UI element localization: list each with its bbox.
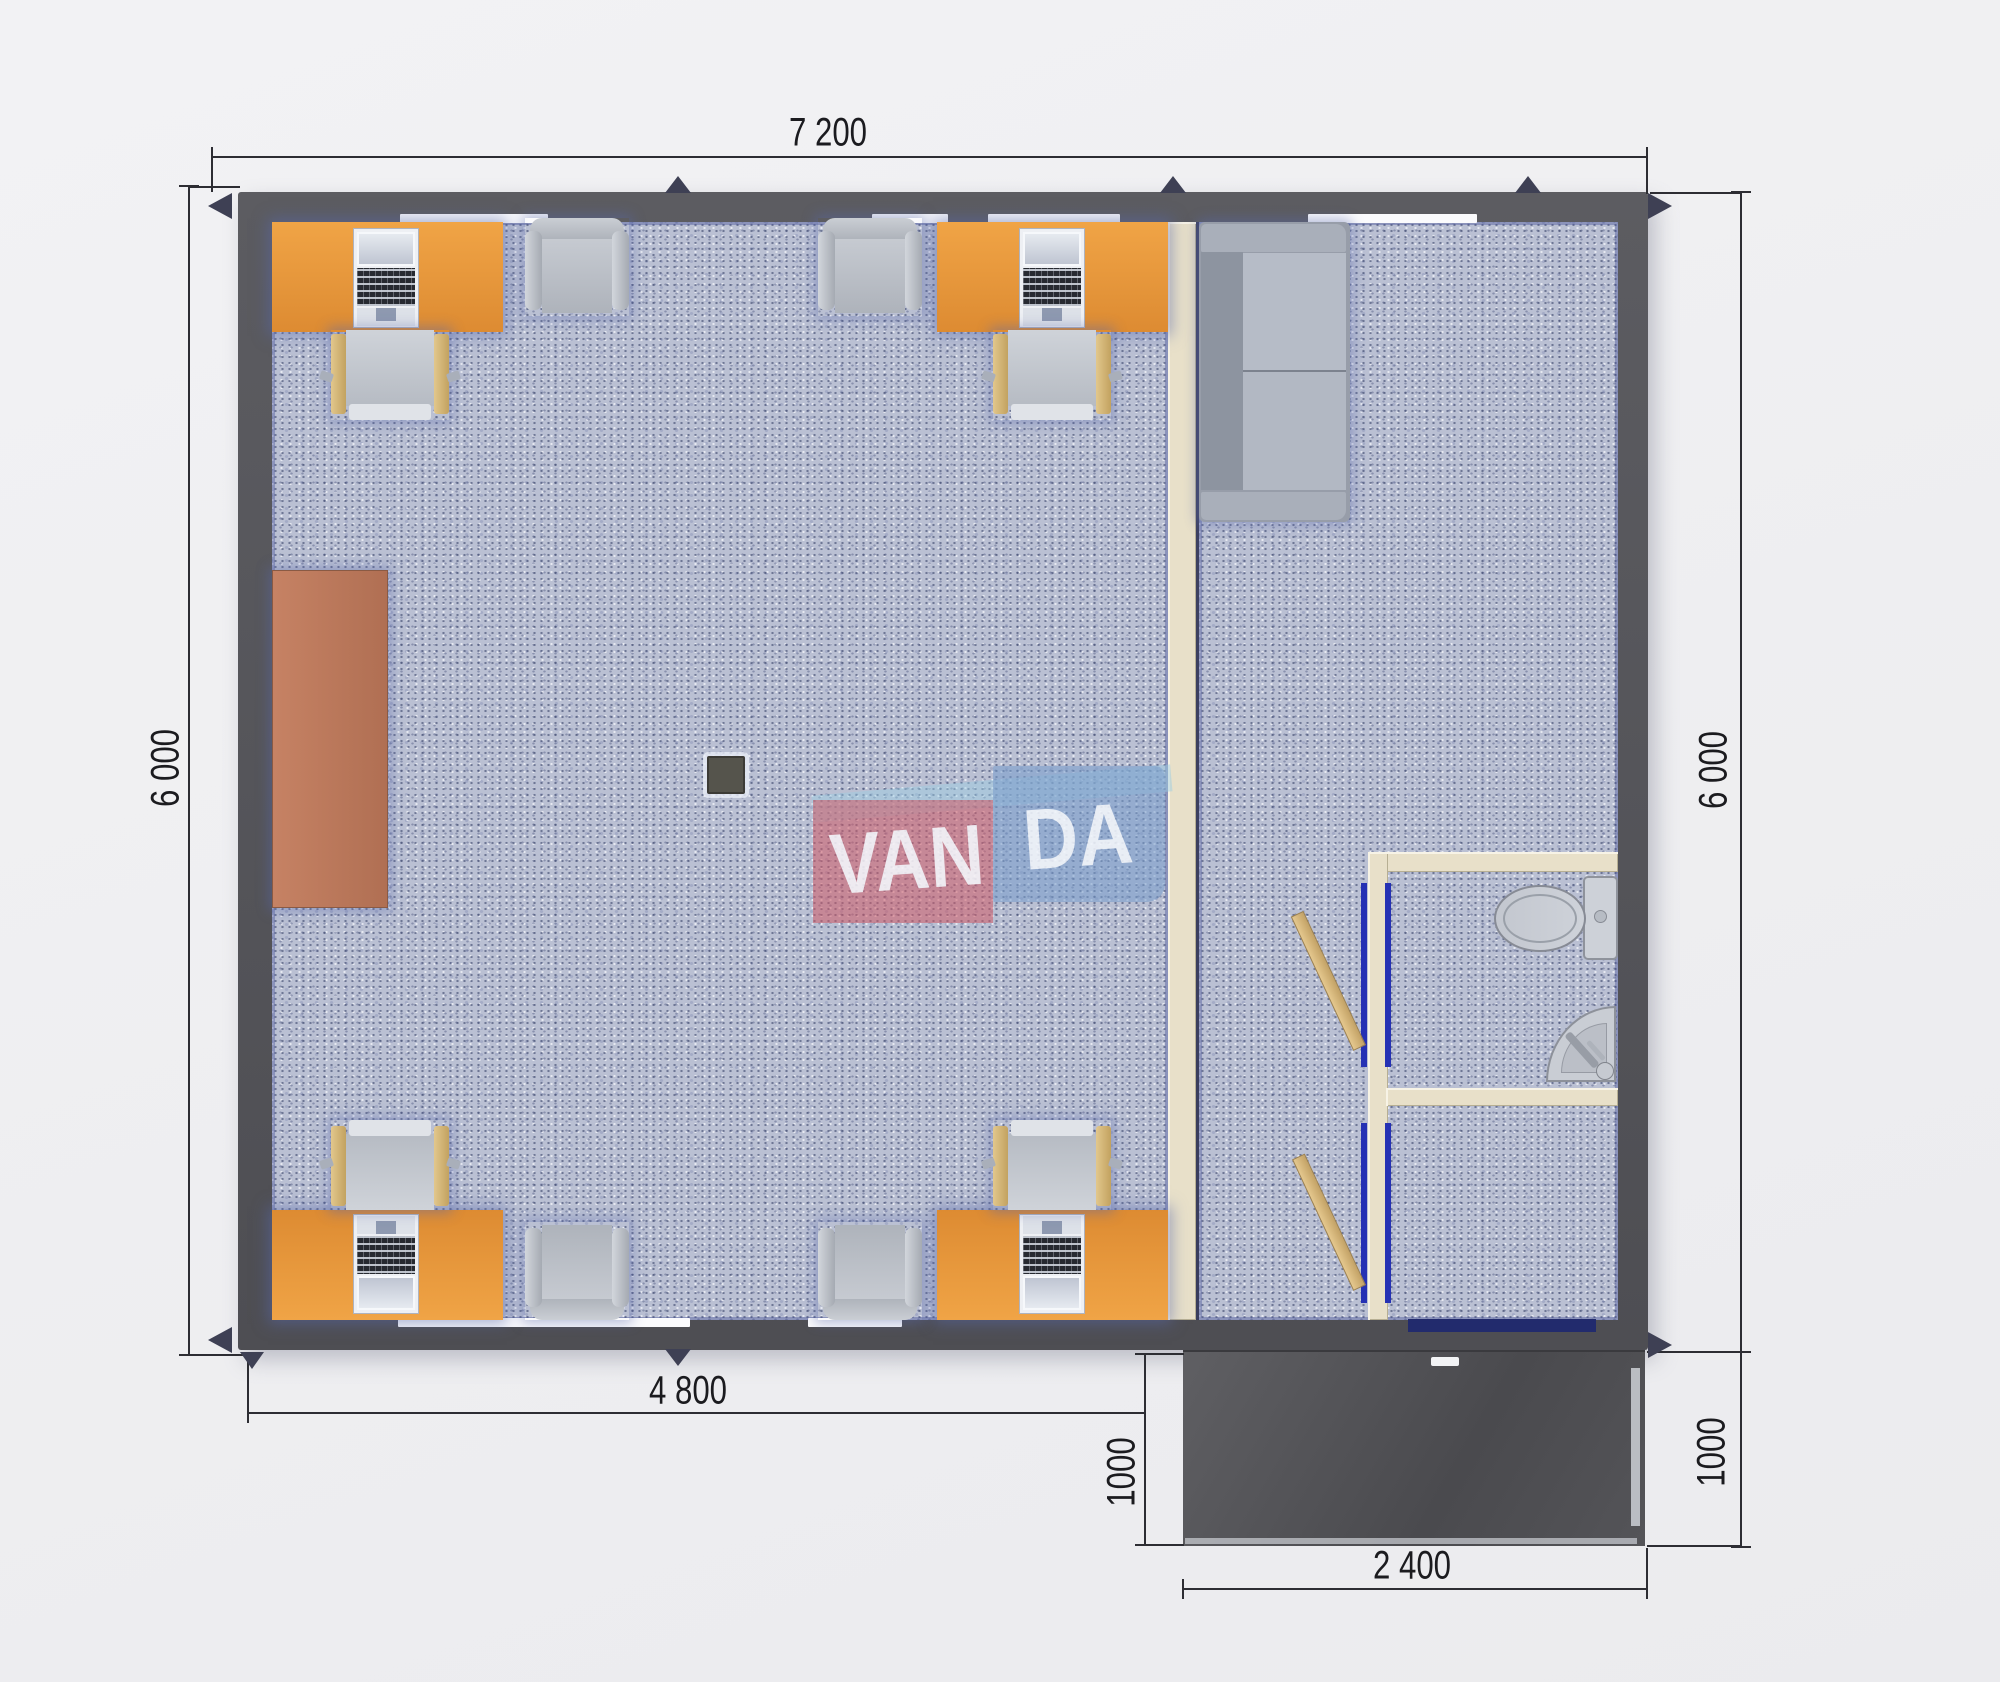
- computer-top-left: [353, 228, 419, 328]
- floor-plan-canvas: VAN DA 7 200 6 000 6 000 1000 4 800 1000…: [0, 0, 2000, 1682]
- computer-screen: [357, 1276, 415, 1310]
- dim-extension: [190, 186, 240, 188]
- porch-edge-right: [1631, 1368, 1640, 1526]
- wall-joint-arrow-top-2-icon: [1160, 176, 1186, 193]
- logo-text-van: VAN: [826, 810, 989, 911]
- corner-arrow-down-icon: [240, 1352, 264, 1369]
- toilet-flush-button: [1594, 910, 1607, 923]
- sofa-cushion-2: [1243, 372, 1346, 490]
- sofa-armrest-bottom: [1201, 492, 1346, 520]
- visitor-chair-bottom-1: [525, 1222, 629, 1320]
- corner-arrow-bottom-left-icon: [208, 1327, 232, 1353]
- computer-tray: [357, 1216, 415, 1234]
- entrance-porch: [1183, 1350, 1645, 1546]
- column: [707, 756, 745, 794]
- office-chair-top-right: [993, 330, 1111, 420]
- toilet-seat-rim: [1503, 894, 1577, 943]
- computer-keyboard: [357, 268, 415, 306]
- corner-arrow-bottom-right-icon: [1648, 1332, 1672, 1358]
- computer-bottom-left: [353, 1214, 419, 1314]
- entrance-door: [1408, 1319, 1596, 1332]
- dim-line-porch-right: [1740, 1352, 1742, 1548]
- porch-door-threshold: [1431, 1357, 1459, 1366]
- visitor-chair-bottom-2: [818, 1222, 922, 1320]
- computer-tray: [357, 308, 415, 326]
- dim-extension: [1146, 1544, 1184, 1546]
- bathroom-wall-divider: [1386, 1088, 1618, 1106]
- visitor-chair-top-2: [818, 218, 922, 316]
- dim-label-left-height: 6 000: [144, 729, 189, 807]
- door-frame-wc-inner: [1385, 883, 1391, 1067]
- computer-keyboard: [1023, 1236, 1081, 1274]
- computer-bottom-right: [1019, 1214, 1085, 1314]
- toilet-tank: [1583, 876, 1618, 960]
- wall-joint-arrow-bottom-icon: [665, 1349, 691, 1366]
- dim-label-overall-width: 7 200: [789, 111, 867, 156]
- dim-line-top: [212, 156, 1648, 158]
- sofa-cushion-1: [1243, 253, 1346, 372]
- faucet-knob: [1596, 1062, 1614, 1080]
- computer-tray: [1023, 308, 1081, 326]
- wall-joint-arrow-top-1-icon: [665, 176, 691, 193]
- corner-arrow-top-left-icon: [208, 193, 232, 219]
- dim-extension: [1646, 1548, 1648, 1590]
- bathroom-wall-top: [1368, 852, 1618, 872]
- office-chair-bottom-left: [331, 1120, 449, 1210]
- office-chair-top-left: [331, 330, 449, 420]
- sofa-armrest-top: [1201, 224, 1346, 252]
- sofa-backrest: [1201, 252, 1243, 490]
- office-chair-bottom-right: [993, 1120, 1111, 1210]
- logo-text-da: DA: [1005, 787, 1152, 887]
- dim-label-porch-width: 2 400: [1373, 1544, 1451, 1589]
- computer-screen: [1023, 232, 1081, 266]
- computer-top-right: [1019, 228, 1085, 328]
- visitor-chair-top-1: [525, 218, 629, 316]
- dim-extension: [1647, 1545, 1742, 1547]
- toilet-bowl: [1494, 885, 1586, 952]
- sofa: [1199, 222, 1350, 522]
- door-frame-storage-inner: [1385, 1123, 1391, 1303]
- computer-keyboard: [357, 1236, 415, 1274]
- cabinet: [272, 570, 388, 908]
- dim-label-porch-depth-right: 1000: [1690, 1417, 1735, 1486]
- computer-screen: [1023, 1276, 1081, 1310]
- computer-tray: [1023, 1216, 1081, 1234]
- dim-extension: [1646, 158, 1648, 194]
- corner-arrow-top-right-icon: [1648, 193, 1672, 219]
- dim-line-right: [1740, 192, 1742, 1352]
- dim-label-office-width: 4 800: [649, 1369, 727, 1414]
- dim-label-porch-depth-left: 1000: [1100, 1437, 1145, 1506]
- dim-label-right-height: 6 000: [1692, 731, 1737, 809]
- dim-tick: [1182, 1579, 1184, 1599]
- dim-extension: [1146, 1353, 1184, 1355]
- wall-joint-arrow-top-3-icon: [1515, 176, 1541, 193]
- computer-keyboard: [1023, 268, 1081, 306]
- partition-wall: [1168, 222, 1196, 1320]
- computer-screen: [357, 232, 415, 266]
